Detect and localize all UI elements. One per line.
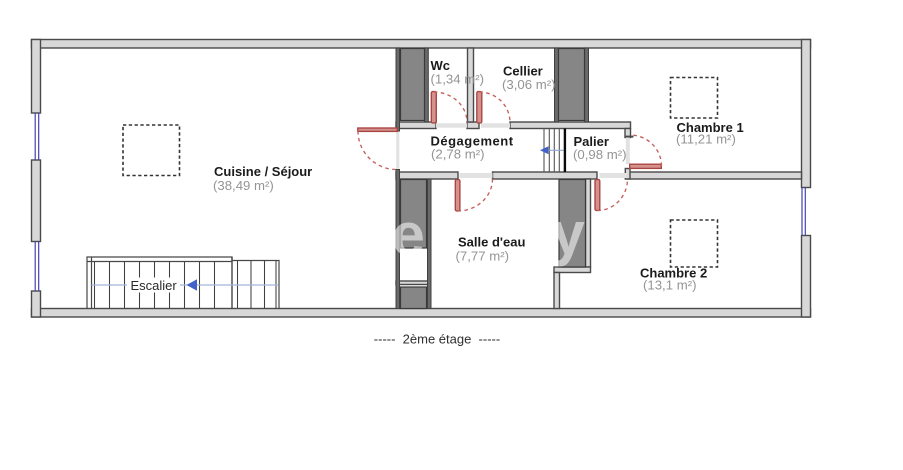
svg-text:e: e <box>392 201 425 268</box>
svg-text:(7,77 m²): (7,77 m²) <box>456 249 510 264</box>
svg-text:(11,21 m²): (11,21 m²) <box>676 132 736 147</box>
svg-text:Salle d'eau: Salle d'eau <box>458 235 525 250</box>
svg-text:Cuisine / Séjour: Cuisine / Séjour <box>214 164 312 179</box>
svg-text:----- 2ème étage -----: ----- 2ème étage ----- <box>374 332 500 347</box>
svg-text:(3,06 m²): (3,06 m²) <box>502 77 556 92</box>
svg-text:y: y <box>552 200 586 267</box>
svg-text:(1,34 m²): (1,34 m²) <box>431 72 485 87</box>
svg-text:(38,49 m²): (38,49 m²) <box>213 178 274 193</box>
svg-text:(13,1 m²): (13,1 m²) <box>643 278 697 293</box>
svg-text:Escalier: Escalier <box>131 278 178 293</box>
svg-text:(2,78 m²): (2,78 m²) <box>431 147 485 162</box>
svg-text:(0,98 m²): (0,98 m²) <box>573 147 627 162</box>
